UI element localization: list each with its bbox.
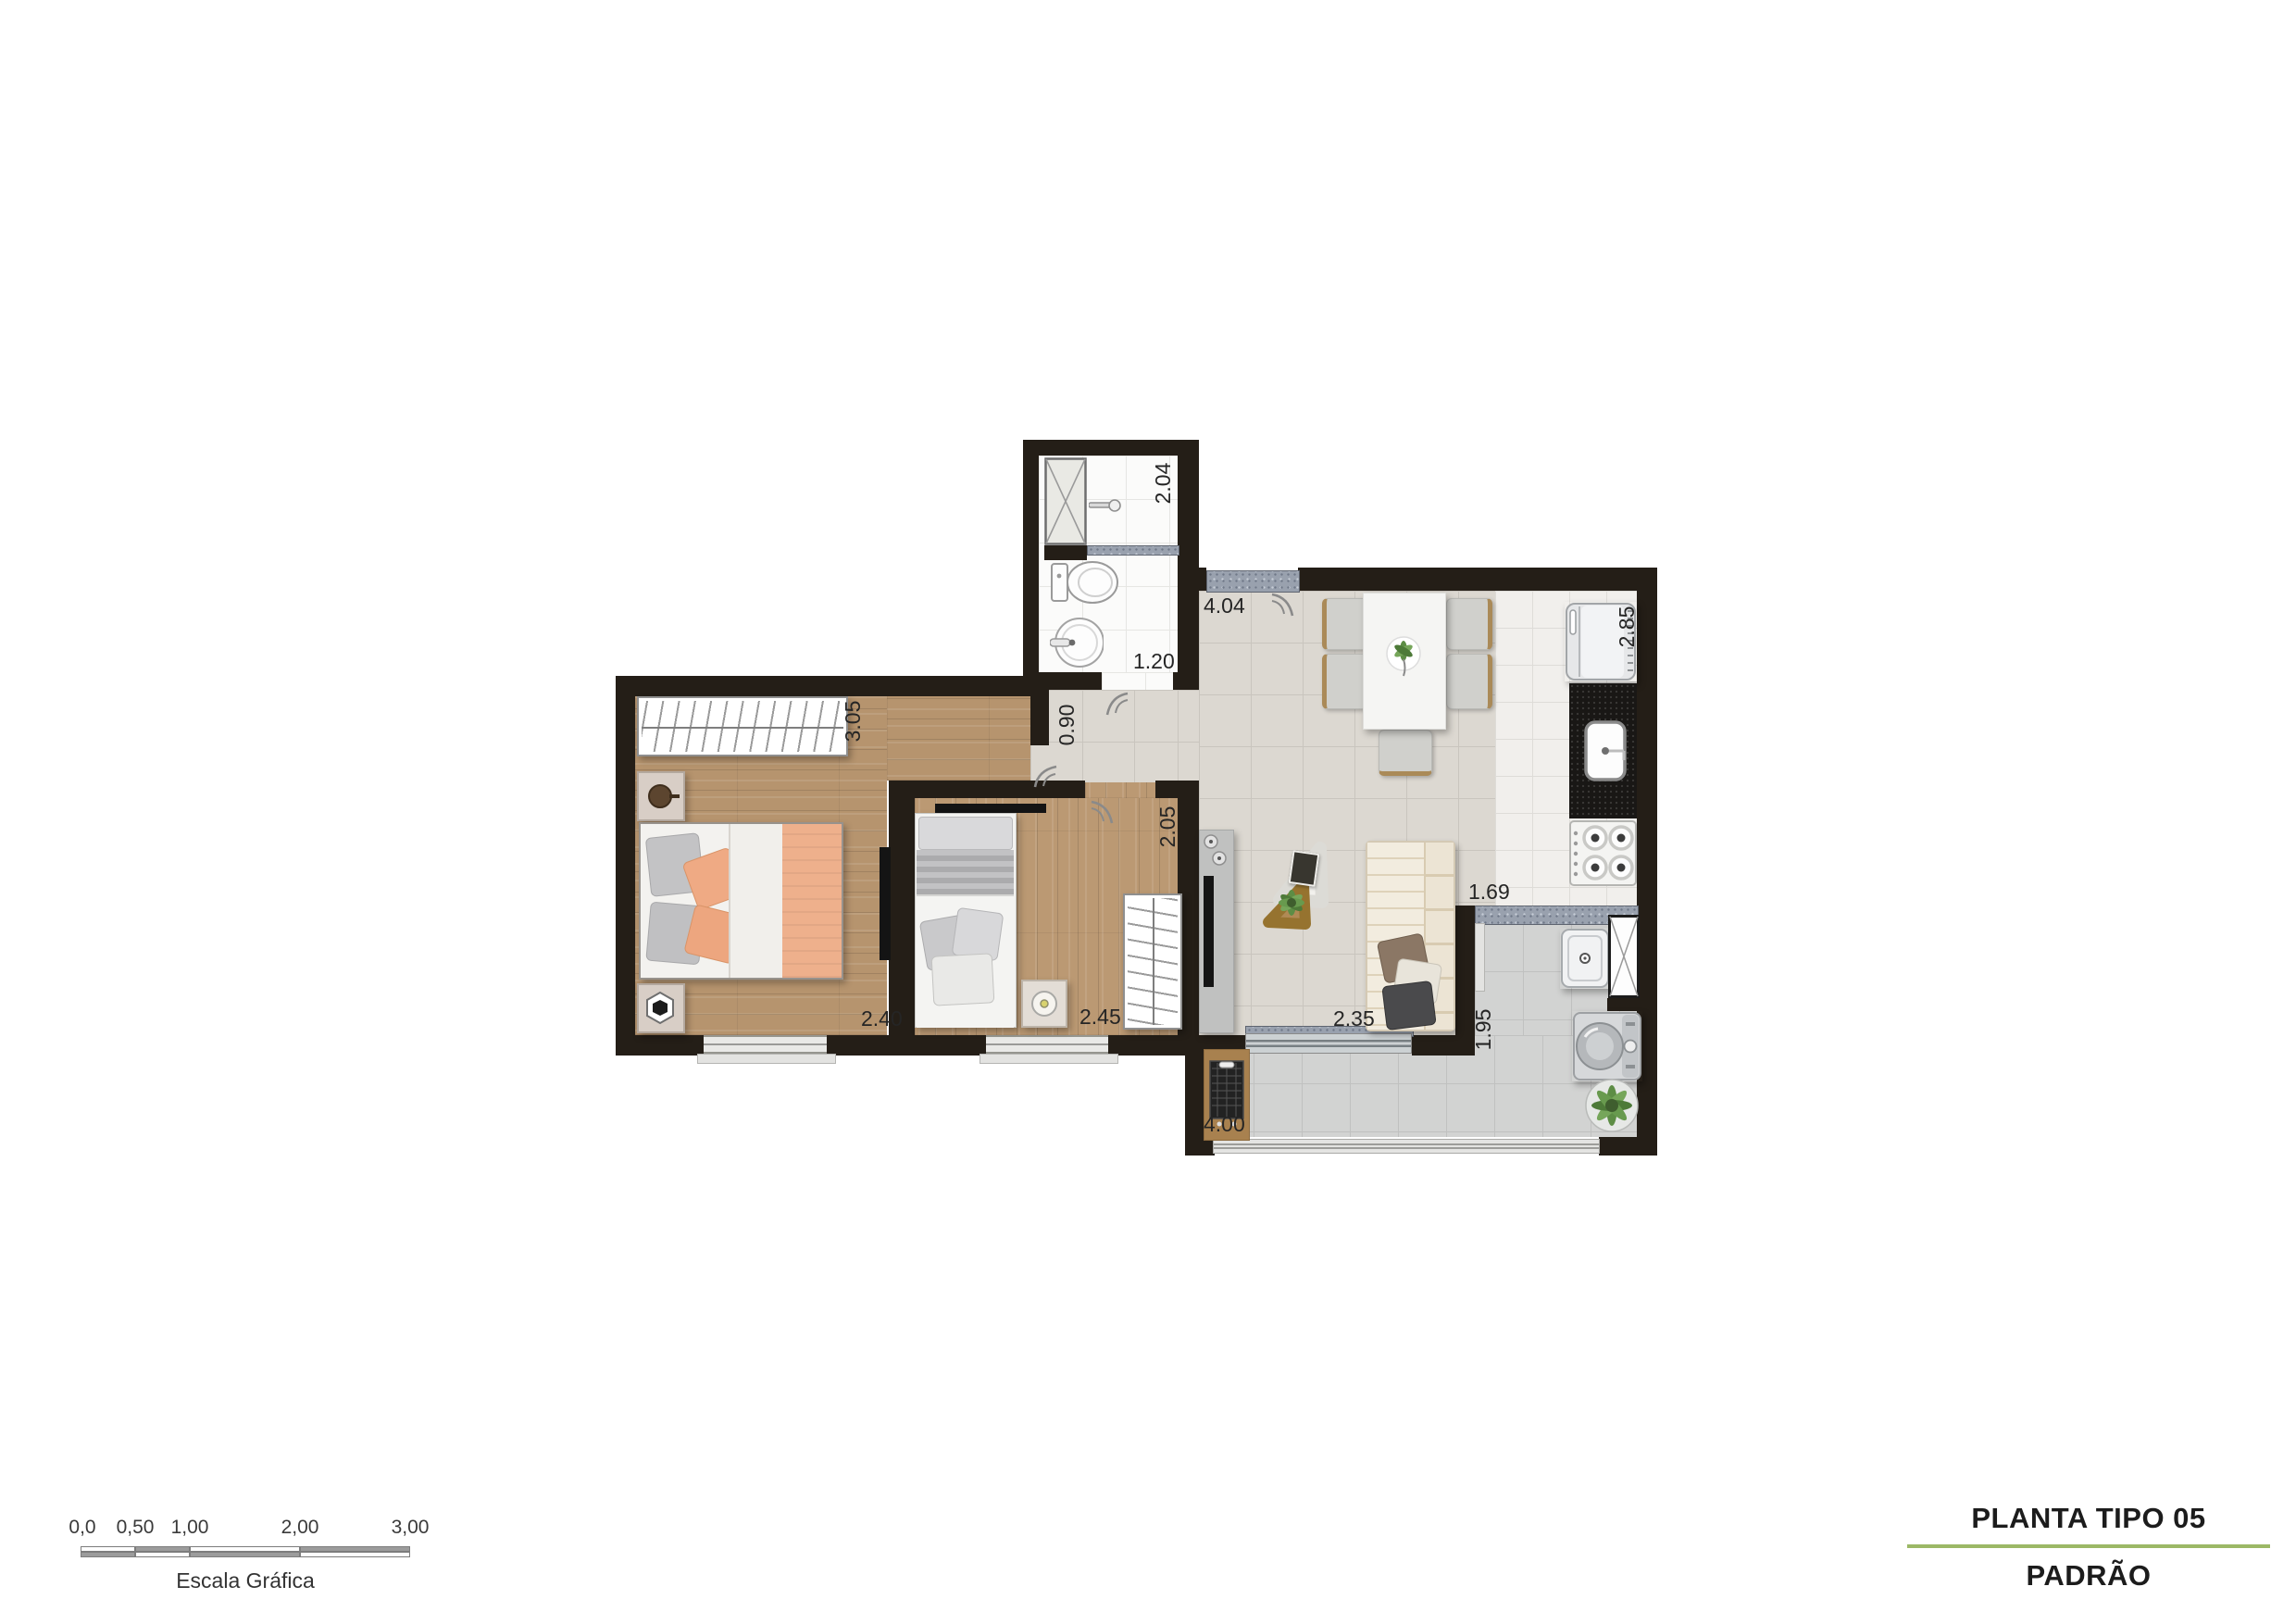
wardrobe-rail — [1153, 898, 1154, 1025]
pillow-charcoal — [1381, 981, 1436, 1031]
laundry-tank — [1560, 928, 1610, 989]
wall-bathroom-right — [1178, 440, 1199, 690]
dimension-label: 1.20 — [1133, 650, 1175, 672]
bedroom1-floor-extension — [887, 694, 1030, 781]
dimension-label: 2.85 — [1616, 594, 1638, 659]
plan-variant-title: PADRÃO — [1907, 1559, 2270, 1593]
balcony-sliding-door — [1245, 1033, 1412, 1054]
pillow-white — [931, 953, 995, 1006]
dimension-label: 1.95 — [1472, 997, 1494, 1062]
scale-segment — [300, 1552, 410, 1557]
kitchen-counter — [1569, 683, 1637, 818]
entry-door-swing-icon — [1268, 592, 1296, 619]
dimension-label: 2.45 — [1079, 1006, 1121, 1028]
scale-segment — [81, 1552, 135, 1557]
scale-tick-label: 0,0 — [69, 1517, 95, 1539]
hall-opening-floor — [1178, 690, 1199, 781]
bedroom1-wardrobe — [637, 696, 848, 756]
floor-plan-sheet: 2.04 1.20 0.90 4.04 2.85 3.05 2.40 2.05 … — [0, 0, 2296, 1624]
magazine — [1289, 850, 1320, 887]
plan-type-title: PLANTA TIPO 05 — [1907, 1502, 2270, 1535]
wall-exterior-left — [616, 676, 635, 1056]
washing-machine — [1572, 1011, 1642, 1081]
dimension-label: 2.40 — [861, 1007, 903, 1030]
title-divider-line — [1907, 1544, 2270, 1548]
double-bed — [639, 822, 843, 980]
bed-blanket-salmon — [782, 824, 842, 978]
bedroom1-window — [704, 1035, 827, 1054]
ventilation-shaft — [1608, 915, 1640, 998]
tv-console — [1199, 830, 1234, 1033]
dining-chair — [1446, 654, 1492, 709]
title-block: PLANTA TIPO 05 PADRÃO — [1907, 1502, 2270, 1593]
hexagon-lamp-icon — [639, 985, 683, 1031]
bedroom2-door-threshold — [1085, 781, 1155, 798]
wall-bedroom1-top — [616, 676, 1039, 696]
wall-bathroom-left — [1023, 440, 1039, 690]
coffee-table-plant — [1272, 883, 1311, 922]
bathroom-door-swing-icon — [1104, 691, 1131, 718]
bedroom1-window-outer-sill — [697, 1054, 836, 1064]
bedroom1-door-swing-icon — [1032, 763, 1060, 791]
wall-shaft-bottom — [1607, 998, 1637, 1011]
wall-hall-left — [1030, 690, 1049, 745]
bedroom2-wardrobe — [1123, 893, 1182, 1030]
wall-bedroom-divider — [889, 798, 915, 1035]
table-centerpiece-plant — [1385, 635, 1422, 678]
dimension-label: 2.05 — [1156, 794, 1179, 859]
bathroom-door-threshold — [1102, 672, 1173, 690]
dining-chair — [1446, 598, 1492, 650]
entry-door-sill — [1206, 570, 1300, 593]
console-knobs-icon — [1200, 832, 1231, 879]
bedroom2-headboard-shelf — [935, 804, 1046, 813]
dining-chair — [1322, 598, 1368, 650]
dimension-label: 2.35 — [1333, 1007, 1375, 1030]
bedroom2-window-outer-sill — [980, 1054, 1118, 1064]
shower-box — [1044, 457, 1087, 545]
bathroom-shower-divider-sill — [1087, 545, 1179, 556]
dining-chair — [1322, 654, 1368, 709]
round-lamp-icon — [1023, 981, 1066, 1026]
bed-folded-sheet — [729, 824, 784, 978]
balcony-plant — [1583, 1077, 1641, 1134]
wall-living-bottom-b — [1412, 1035, 1475, 1056]
bedroom2-nightstand — [1021, 980, 1067, 1028]
scale-caption: Escala Gráfica — [120, 1568, 370, 1593]
scale-tick-label: 1,00 — [171, 1517, 209, 1539]
scale-segment — [190, 1552, 300, 1557]
cooktop-stove — [1569, 820, 1637, 886]
bedroom1-tv — [880, 847, 891, 960]
scale-tick-label: 3,00 — [392, 1517, 430, 1539]
bed-pillow-top — [918, 817, 1013, 850]
scale-bar: 0,0 0,50 1,00 2,00 3,00 Escala Gráfica — [69, 1517, 440, 1596]
scale-tick-label: 2,00 — [281, 1517, 319, 1539]
bedroom2-window — [986, 1035, 1108, 1054]
bedroom1-nightstand-top — [637, 771, 685, 821]
dimension-label: 1.69 — [1468, 881, 1510, 903]
wall-balcony-corner-right — [1599, 1137, 1657, 1156]
wardrobe-rail — [642, 727, 843, 729]
dimension-label: 0.90 — [1055, 693, 1078, 757]
wall-bathroom-bottom-b — [1173, 672, 1199, 690]
dimension-label: 2.04 — [1152, 451, 1174, 516]
laundry-window-strip — [1475, 923, 1485, 992]
living-tv — [1204, 876, 1214, 987]
sofa — [1366, 841, 1455, 1031]
scale-segment — [135, 1552, 190, 1557]
single-bed — [915, 813, 1017, 1028]
wall-living-top-stub — [1199, 568, 1206, 591]
balcony-guardrail — [1213, 1139, 1600, 1154]
wall-bottom-b — [827, 1035, 986, 1056]
dimension-label: 3.05 — [842, 689, 864, 754]
toilet — [1050, 557, 1124, 607]
table-lamp-icon — [639, 773, 683, 819]
bedroom2-door-swing-icon — [1088, 799, 1116, 827]
scale-tick-label: 0,50 — [117, 1517, 155, 1539]
bed-striped-band — [917, 850, 1014, 894]
dimension-label: 4.00 — [1204, 1113, 1245, 1135]
bedroom1-nightstand-bottom — [637, 983, 685, 1033]
shower-head-icon — [1089, 496, 1124, 515]
dining-chair — [1379, 730, 1432, 776]
washbasin — [1050, 613, 1104, 672]
dimension-label: 4.04 — [1204, 594, 1245, 617]
kitchen-sink — [1569, 683, 1637, 818]
wall-bathroom-bottom-a — [1023, 672, 1102, 690]
wall-bottom-a — [616, 1035, 704, 1056]
wall-living-top — [1298, 568, 1657, 591]
